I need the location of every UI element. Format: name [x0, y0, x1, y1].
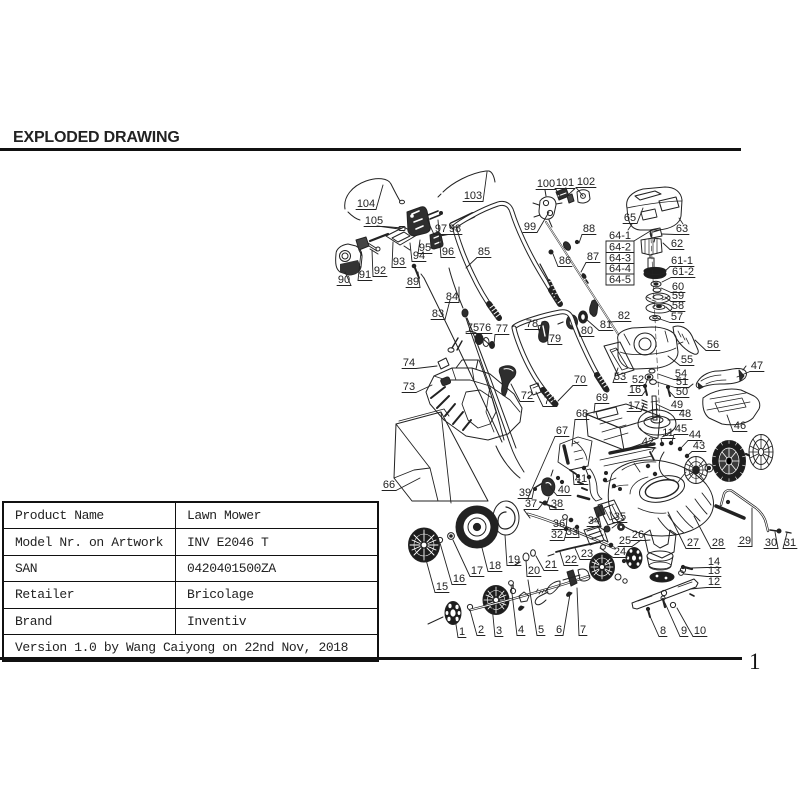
svg-text:22: 22 — [565, 554, 577, 566]
svg-text:67: 67 — [556, 425, 568, 437]
svg-text:24: 24 — [614, 546, 626, 558]
svg-text:45: 45 — [675, 423, 687, 435]
svg-text:8: 8 — [660, 625, 666, 637]
svg-text:11: 11 — [662, 427, 673, 439]
svg-text:92: 92 — [374, 265, 386, 277]
svg-text:38: 38 — [551, 498, 563, 510]
svg-text:82: 82 — [618, 310, 630, 322]
svg-text:64-5: 64-5 — [609, 274, 631, 286]
svg-text:81: 81 — [600, 319, 612, 331]
svg-text:84: 84 — [446, 291, 458, 303]
svg-text:86: 86 — [559, 255, 571, 267]
svg-text:72: 72 — [521, 390, 533, 402]
svg-text:43: 43 — [693, 440, 705, 452]
svg-text:27: 27 — [687, 537, 699, 549]
svg-text:2: 2 — [478, 624, 484, 636]
svg-text:80: 80 — [581, 325, 593, 337]
svg-text:65: 65 — [624, 212, 636, 224]
svg-text:93: 93 — [393, 256, 405, 268]
svg-text:57: 57 — [671, 311, 683, 323]
svg-text:73: 73 — [403, 381, 415, 393]
svg-text:15: 15 — [436, 581, 448, 593]
svg-text:18: 18 — [489, 560, 501, 572]
svg-text:10: 10 — [694, 625, 706, 637]
svg-text:96: 96 — [442, 246, 454, 258]
svg-text:32: 32 — [551, 529, 563, 541]
svg-text:53: 53 — [614, 371, 626, 383]
svg-text:41: 41 — [575, 473, 587, 485]
svg-text:1: 1 — [459, 626, 465, 638]
svg-text:97: 97 — [435, 223, 447, 235]
svg-text:33: 33 — [566, 526, 578, 538]
svg-text:66: 66 — [383, 479, 395, 491]
svg-text:64-1: 64-1 — [609, 230, 631, 242]
svg-text:62: 62 — [671, 238, 683, 250]
svg-text:76: 76 — [479, 322, 491, 334]
svg-text:94: 94 — [413, 250, 425, 262]
svg-text:17: 17 — [628, 400, 640, 412]
svg-text:40: 40 — [558, 484, 570, 496]
svg-text:104: 104 — [357, 198, 375, 210]
svg-text:103: 103 — [464, 190, 482, 202]
svg-text:71: 71 — [544, 395, 556, 407]
svg-text:69: 69 — [596, 392, 608, 404]
svg-text:46: 46 — [734, 420, 746, 432]
svg-text:30: 30 — [765, 537, 777, 549]
svg-text:48: 48 — [679, 408, 691, 420]
svg-text:75: 75 — [467, 322, 479, 334]
svg-text:47: 47 — [751, 360, 763, 372]
svg-text:26: 26 — [632, 529, 644, 541]
svg-text:77: 77 — [496, 323, 508, 335]
svg-text:9: 9 — [681, 625, 687, 637]
svg-text:28: 28 — [712, 537, 724, 549]
svg-text:20: 20 — [528, 565, 540, 577]
svg-text:37: 37 — [525, 498, 537, 510]
svg-text:98: 98 — [449, 223, 461, 235]
svg-text:78: 78 — [526, 318, 538, 330]
svg-text:17: 17 — [471, 565, 483, 577]
svg-text:7: 7 — [580, 624, 586, 636]
svg-text:21: 21 — [545, 559, 557, 571]
svg-text:50: 50 — [676, 386, 688, 398]
svg-text:79: 79 — [549, 333, 561, 345]
svg-text:29: 29 — [739, 535, 751, 547]
svg-text:12: 12 — [708, 576, 720, 588]
svg-text:105: 105 — [365, 215, 383, 227]
svg-text:16: 16 — [453, 573, 465, 585]
svg-text:85: 85 — [478, 246, 490, 258]
svg-text:61-2: 61-2 — [672, 266, 694, 278]
svg-text:16: 16 — [629, 384, 641, 396]
svg-text:55: 55 — [681, 354, 693, 366]
svg-text:70: 70 — [574, 374, 586, 386]
svg-text:19: 19 — [508, 554, 520, 566]
svg-text:89: 89 — [407, 276, 419, 288]
svg-text:3: 3 — [496, 625, 502, 637]
svg-text:63: 63 — [676, 223, 688, 235]
svg-text:68: 68 — [576, 408, 588, 420]
svg-text:42: 42 — [642, 436, 654, 448]
svg-text:83: 83 — [432, 308, 444, 320]
svg-text:88: 88 — [583, 223, 595, 235]
svg-text:91: 91 — [359, 269, 371, 281]
svg-text:34: 34 — [588, 515, 600, 527]
svg-text:35: 35 — [614, 511, 626, 523]
svg-text:4: 4 — [518, 624, 524, 636]
svg-text:101: 101 — [556, 177, 574, 189]
svg-text:87: 87 — [587, 251, 599, 263]
svg-text:23: 23 — [581, 548, 593, 560]
svg-text:5: 5 — [538, 624, 544, 636]
svg-text:102: 102 — [577, 176, 595, 188]
svg-text:56: 56 — [707, 339, 719, 351]
svg-text:6: 6 — [556, 624, 562, 636]
svg-text:74: 74 — [403, 357, 415, 369]
svg-text:100: 100 — [537, 178, 555, 190]
svg-text:99: 99 — [524, 221, 536, 233]
